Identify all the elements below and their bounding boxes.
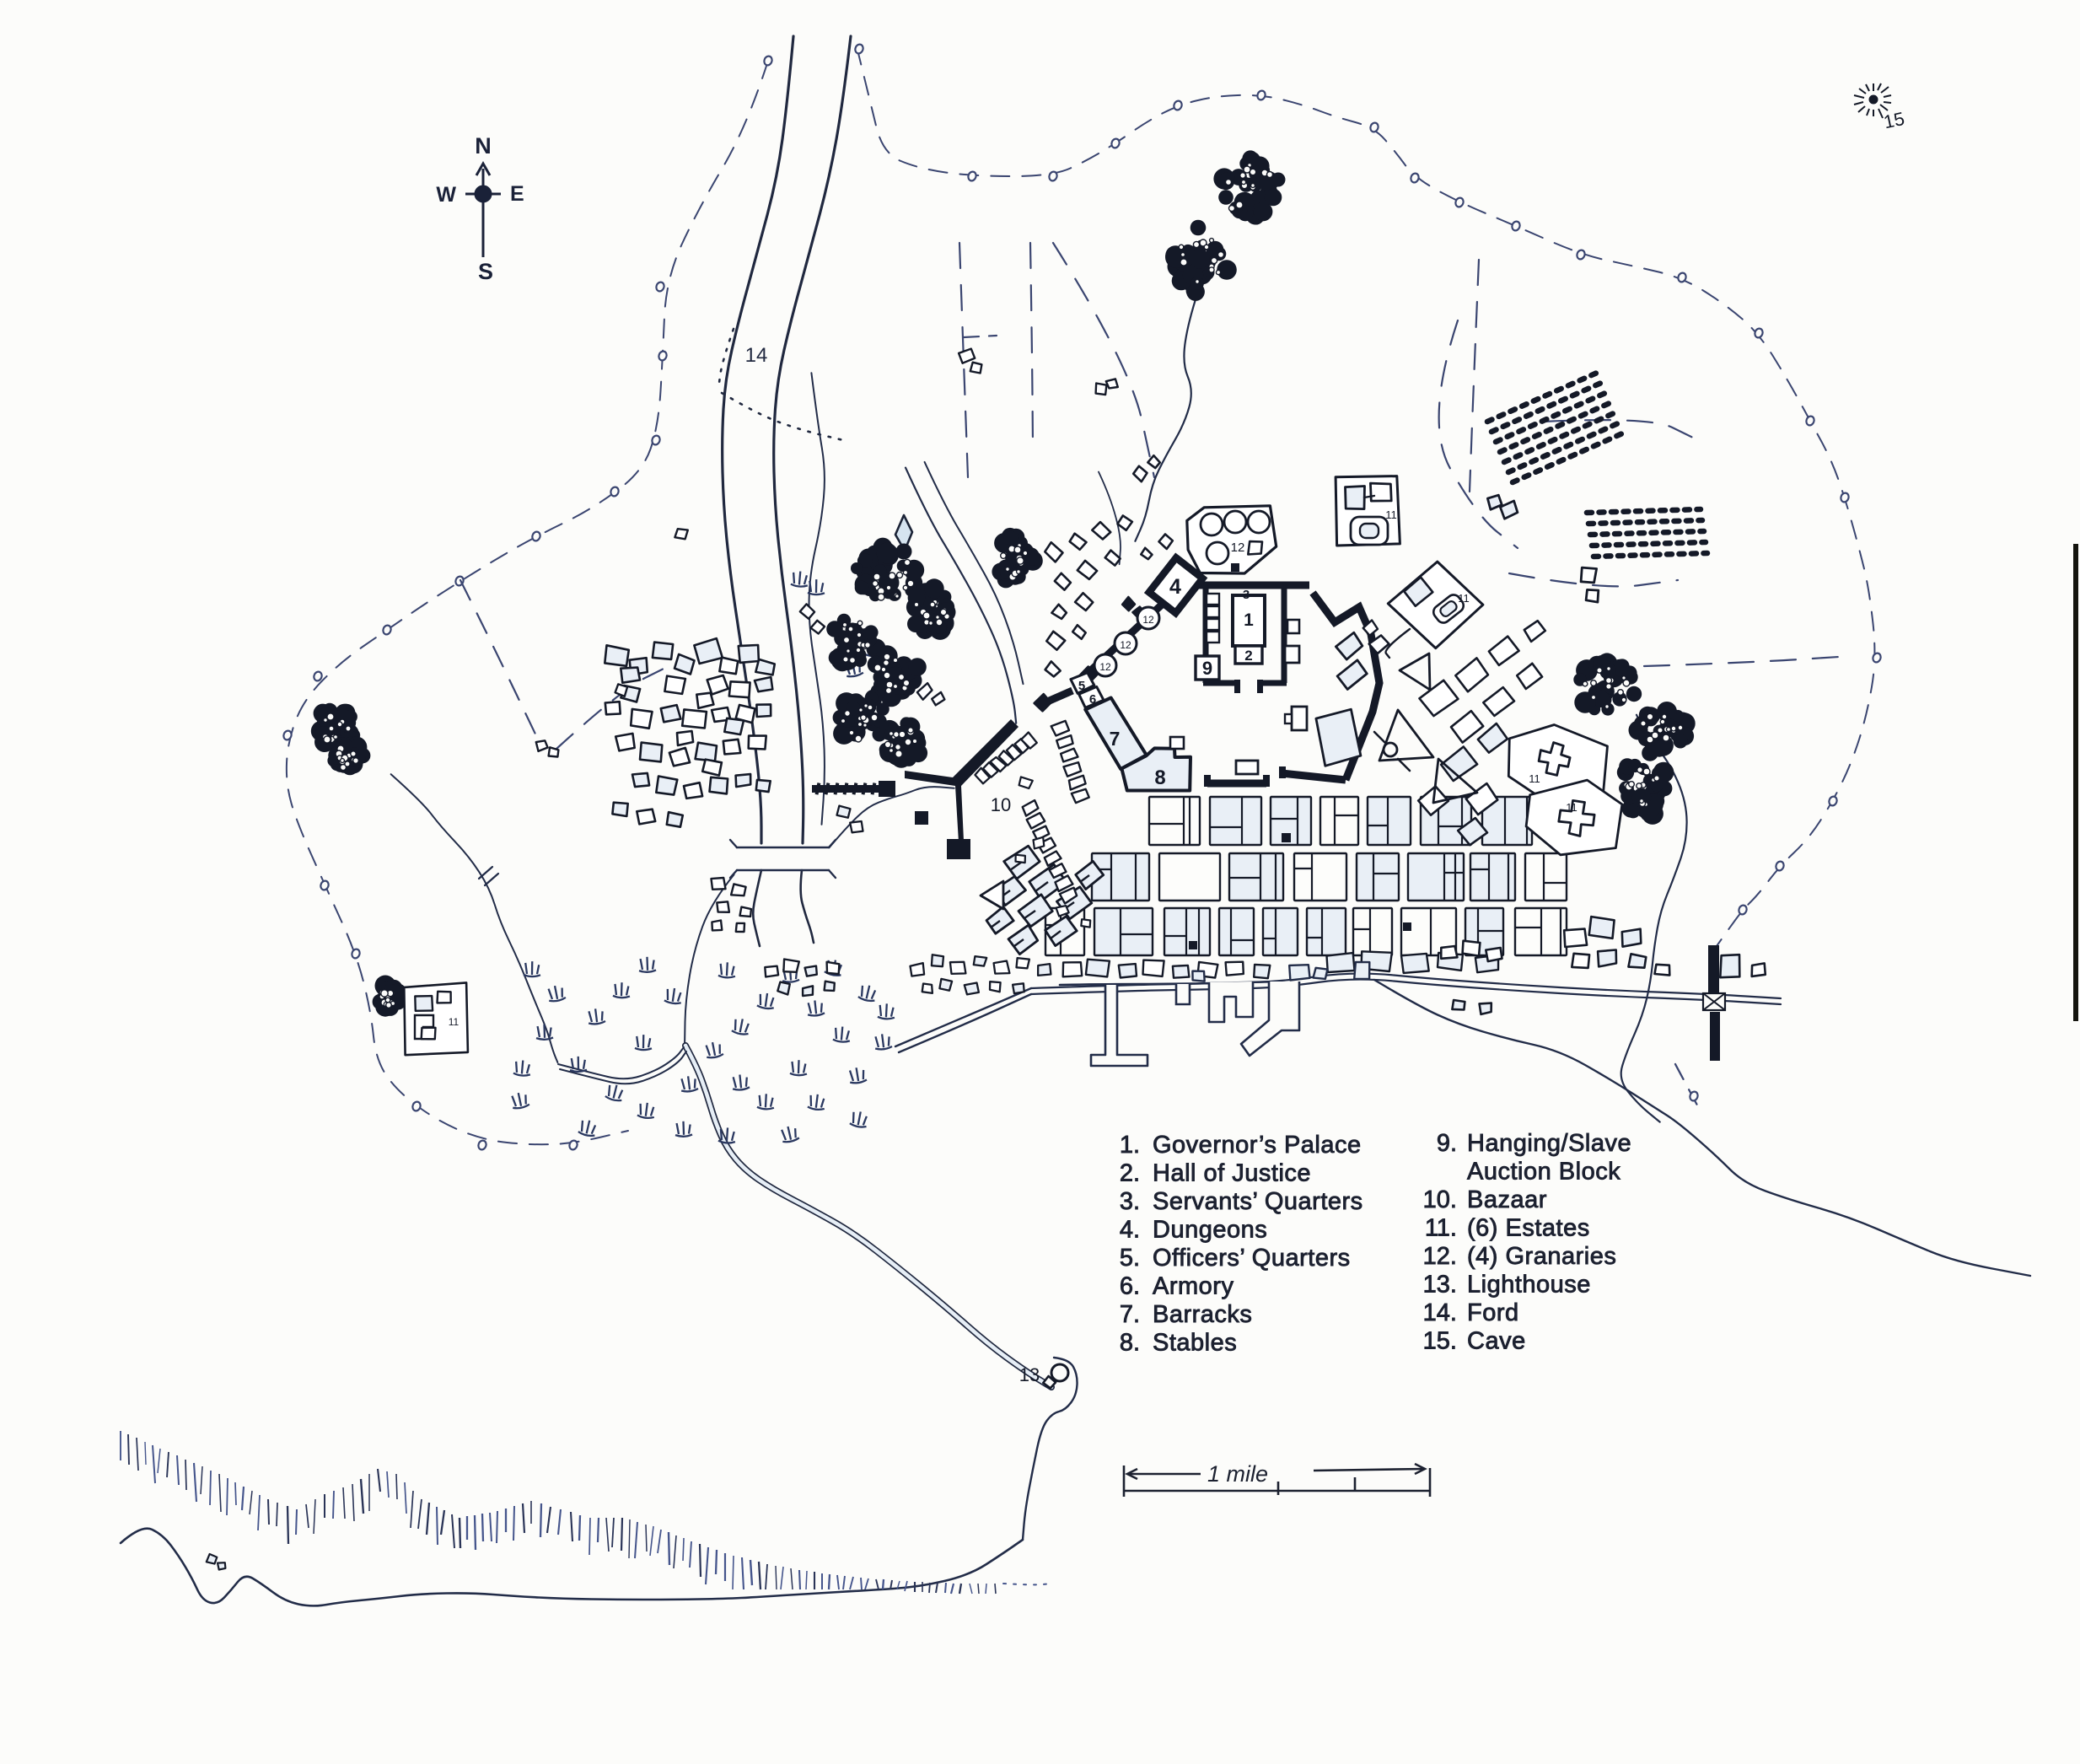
svg-text:1 mile: 1 mile (1207, 1461, 1268, 1487)
svg-text:Auction Block: Auction Block (1467, 1159, 1620, 1186)
svg-text:Dungeons: Dungeons (1153, 1217, 1267, 1244)
svg-text:6.: 6. (1120, 1273, 1140, 1300)
svg-text:1: 1 (1244, 610, 1254, 630)
svg-text:(4) Granaries: (4) Granaries (1467, 1243, 1616, 1270)
svg-text:15: 15 (1882, 108, 1906, 133)
svg-text:Servants’ Quarters: Servants’ Quarters (1153, 1188, 1363, 1215)
svg-text:12.: 12. (1423, 1243, 1457, 1270)
svg-text:12: 12 (1120, 639, 1131, 651)
svg-text:13.: 13. (1423, 1272, 1457, 1299)
svg-text:Lighthouse: Lighthouse (1467, 1272, 1591, 1299)
svg-text:Ford: Ford (1467, 1299, 1519, 1326)
svg-text:Armory: Armory (1153, 1273, 1233, 1300)
svg-text:14.: 14. (1423, 1299, 1457, 1326)
svg-text:11.: 11. (1425, 1215, 1457, 1242)
svg-text:N: N (475, 133, 492, 159)
svg-text:4: 4 (1169, 575, 1181, 599)
svg-text:W: W (436, 183, 456, 207)
svg-text:15.: 15. (1423, 1328, 1457, 1355)
svg-text:11: 11 (449, 1016, 460, 1028)
svg-text:12: 12 (1099, 661, 1111, 673)
svg-text:10.: 10. (1423, 1186, 1457, 1213)
svg-text:5.: 5. (1120, 1245, 1140, 1272)
svg-text:(6) Estates: (6) Estates (1467, 1215, 1590, 1242)
svg-text:8: 8 (1154, 766, 1165, 789)
svg-text:Bazaar: Bazaar (1467, 1186, 1547, 1213)
svg-text:9: 9 (1202, 658, 1212, 679)
svg-text:Cave: Cave (1467, 1328, 1526, 1355)
svg-text:Governor’s Palace: Governor’s Palace (1153, 1132, 1362, 1159)
svg-text:14: 14 (745, 344, 768, 367)
svg-text:2.: 2. (1120, 1160, 1140, 1187)
svg-text:4.: 4. (1120, 1217, 1140, 1244)
svg-text:9.: 9. (1437, 1130, 1457, 1157)
svg-text:3.: 3. (1120, 1188, 1140, 1215)
svg-text:11: 11 (1566, 801, 1577, 814)
svg-text:8.: 8. (1120, 1330, 1140, 1357)
svg-text:11: 11 (1385, 508, 1397, 521)
svg-text:S: S (478, 259, 493, 284)
svg-text:Stables: Stables (1153, 1330, 1237, 1357)
svg-text:Officers’ Quarters: Officers’ Quarters (1153, 1245, 1351, 1272)
svg-text:E: E (510, 182, 524, 206)
svg-text:11: 11 (1458, 592, 1470, 605)
svg-text:13: 13 (1019, 1364, 1040, 1385)
svg-text:3: 3 (1243, 588, 1250, 602)
svg-text:Hanging/Slave: Hanging/Slave (1467, 1130, 1631, 1157)
svg-text:7: 7 (1110, 728, 1121, 750)
svg-text:2: 2 (1244, 648, 1252, 664)
svg-text:12: 12 (1231, 540, 1245, 555)
svg-text:12: 12 (1142, 614, 1154, 626)
svg-text:Hall of Justice: Hall of Justice (1153, 1160, 1311, 1187)
svg-text:1.: 1. (1120, 1132, 1140, 1159)
svg-text:7.: 7. (1120, 1301, 1140, 1328)
svg-text:11: 11 (1529, 772, 1540, 785)
svg-text:Barracks: Barracks (1153, 1301, 1252, 1328)
svg-text:10: 10 (991, 794, 1011, 815)
